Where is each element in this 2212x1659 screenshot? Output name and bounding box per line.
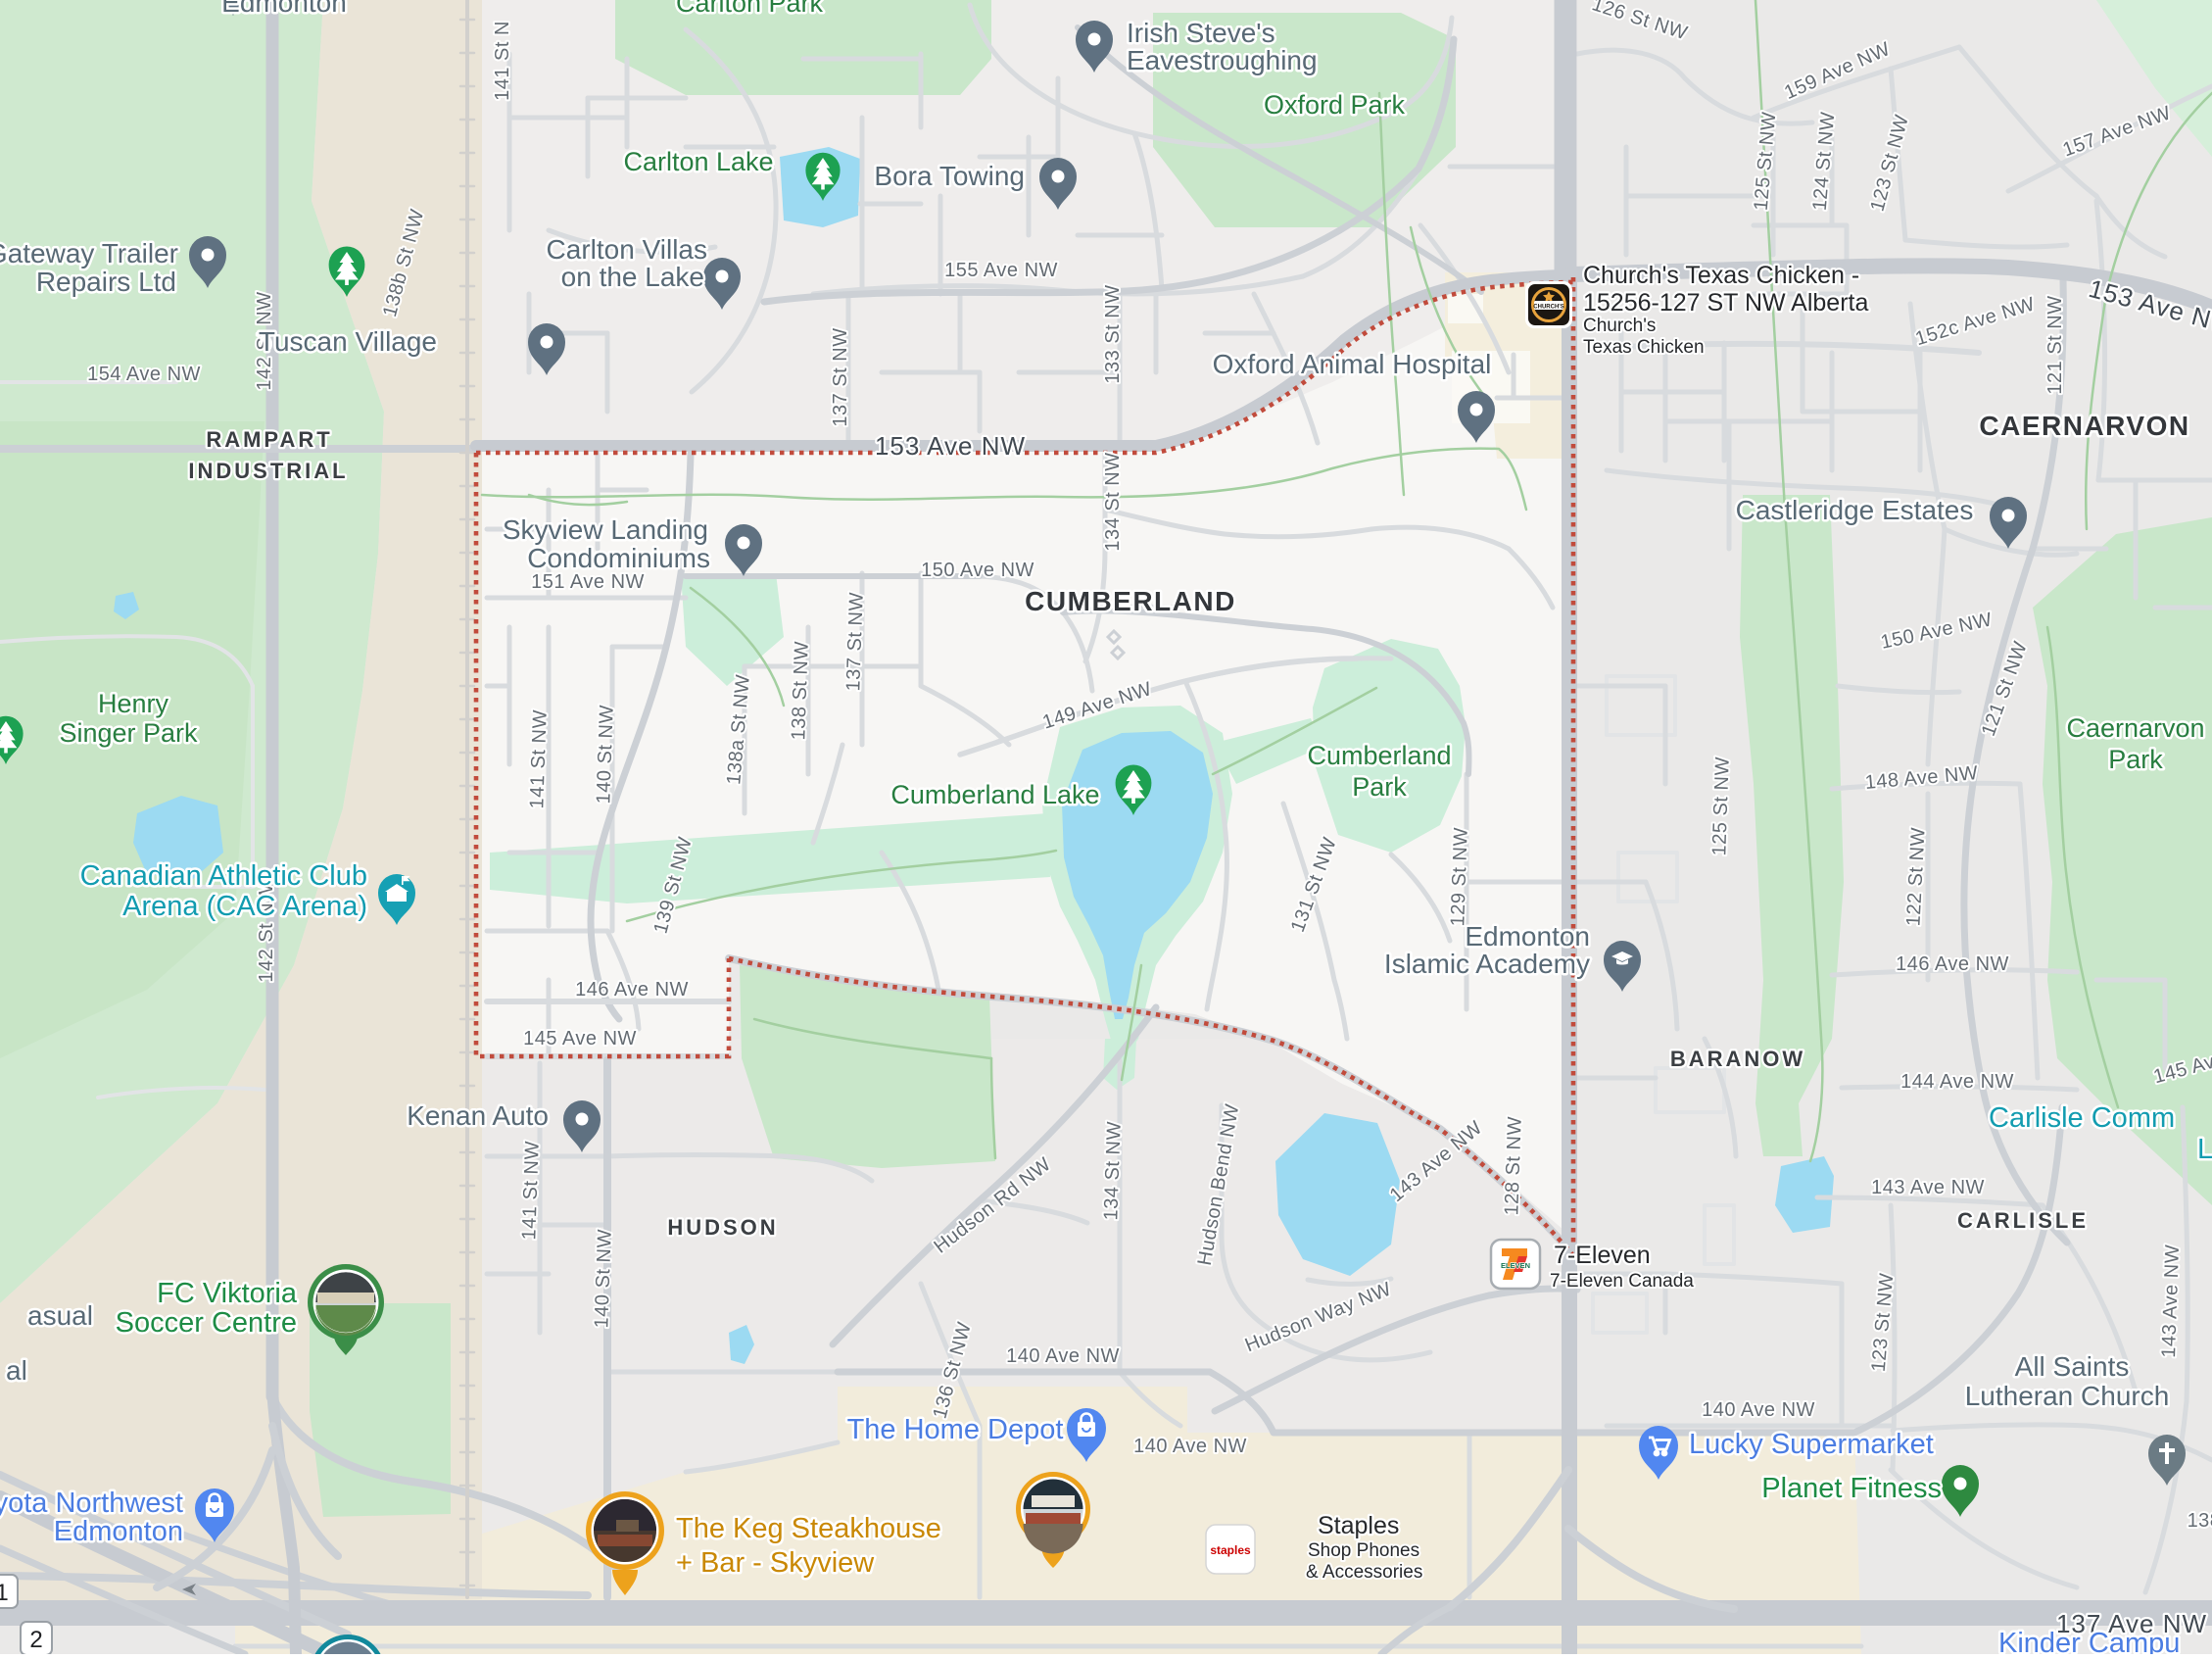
- svg-text:Park: Park: [1352, 772, 1407, 802]
- svg-text:Kinder Campu: Kinder Campu: [1998, 1628, 2180, 1654]
- svg-text:138 St NW: 138 St NW: [788, 641, 813, 741]
- svg-text:Irish Steve's: Irish Steve's: [1127, 18, 1275, 48]
- svg-text:Henry: Henry: [98, 689, 169, 718]
- svg-text:141 St NW: 141 St NW: [518, 1141, 544, 1241]
- svg-text:Edmonton: Edmonton: [54, 1516, 183, 1547]
- svg-text:Cumberland Lake: Cumberland Lake: [890, 780, 1099, 809]
- svg-text:1: 1: [0, 1580, 9, 1606]
- svg-text:+ Bar - Skyview: + Bar - Skyview: [676, 1547, 875, 1579]
- svg-text:146 Ave NW: 146 Ave NW: [1896, 953, 2009, 975]
- svg-text:150 Ave NW: 150 Ave NW: [921, 560, 1034, 581]
- svg-text:Lucky Supermarket: Lucky Supermarket: [1689, 1429, 1934, 1460]
- svg-text:HUDSON: HUDSON: [667, 1215, 778, 1240]
- svg-text:Planet Fitness: Planet Fitness: [1761, 1473, 1942, 1504]
- svg-text:140 Ave NW: 140 Ave NW: [1006, 1345, 1120, 1367]
- svg-text:Oxford Park: Oxford Park: [1264, 90, 1406, 120]
- svg-text:143 Ave NW: 143 Ave NW: [2158, 1244, 2184, 1359]
- svg-text:125 St NW: 125 St NW: [1708, 756, 1734, 856]
- svg-text:Shop Phones: Shop Phones: [1308, 1540, 1419, 1561]
- svg-text:CHURCH'S: CHURCH'S: [1533, 305, 1563, 311]
- svg-text:Gateway Trailer: Gateway Trailer: [0, 238, 178, 268]
- svg-text:ELEVEN: ELEVEN: [1501, 1261, 1530, 1270]
- svg-text:The Keg Steakhouse: The Keg Steakhouse: [676, 1513, 941, 1544]
- svg-text:140 St NW: 140 St NW: [591, 1229, 616, 1329]
- svg-text:Eavestroughing: Eavestroughing: [1127, 45, 1318, 75]
- svg-text:Carlisle Comm: Carlisle Comm: [1989, 1102, 2175, 1134]
- svg-text:Carlton Park: Carlton Park: [676, 0, 824, 18]
- svg-text:129 St NW: 129 St NW: [1447, 827, 1472, 927]
- svg-text:7-Eleven: 7-Eleven: [1554, 1242, 1651, 1269]
- svg-text:2: 2: [29, 1627, 42, 1653]
- svg-text:140 Ave NW: 140 Ave NW: [1133, 1436, 1247, 1457]
- svg-text:140 St NW: 140 St NW: [593, 705, 618, 805]
- svg-text:144 Ave NW: 144 Ave NW: [1900, 1071, 2014, 1093]
- svg-text:Castleridge Estates: Castleridge Estates: [1736, 495, 1974, 525]
- svg-text:on the Lake: on the Lake: [561, 262, 704, 292]
- svg-text:Church's Texas Chicken -: Church's Texas Chicken -: [1583, 262, 1859, 289]
- svg-text:Caernarvon: Caernarvon: [2066, 713, 2204, 743]
- svg-text:asual: asual: [27, 1300, 93, 1331]
- svg-text:Carlton Villas: Carlton Villas: [547, 234, 707, 265]
- svg-text:Church's: Church's: [1583, 316, 1656, 336]
- svg-text:153 Ave NW: 153 Ave NW: [875, 431, 1026, 461]
- svg-text:145 Ave NW: 145 Ave NW: [523, 1028, 637, 1049]
- svg-text:121 St NW: 121 St NW: [2044, 295, 2066, 394]
- svg-text:137 St NW: 137 St NW: [830, 327, 851, 426]
- svg-text:staples: staples: [1210, 1543, 1251, 1557]
- svg-text:& Accessories: & Accessories: [1306, 1562, 1422, 1583]
- svg-text:146 Ave NW: 146 Ave NW: [575, 979, 689, 1000]
- svg-text:Park: Park: [2108, 745, 2163, 774]
- svg-text:155 Ave NW: 155 Ave NW: [944, 260, 1058, 281]
- svg-text:Soccer Centre: Soccer Centre: [116, 1307, 297, 1339]
- svg-text:133 St NW: 133 St NW: [1102, 284, 1124, 383]
- svg-text:134 St NW: 134 St NW: [1102, 452, 1124, 551]
- svg-text:INDUSTRIAL: INDUSTRIAL: [188, 459, 348, 483]
- svg-text:128 St NW: 128 St NW: [1501, 1116, 1526, 1216]
- svg-text:Repairs Ltd: Repairs Ltd: [36, 267, 176, 297]
- svg-text:Kenan Auto: Kenan Auto: [407, 1100, 549, 1131]
- svg-text:Singer Park: Singer Park: [59, 718, 198, 748]
- svg-text:Cumberland: Cumberland: [1307, 741, 1451, 770]
- svg-text:Islamic Academy: Islamic Academy: [1384, 949, 1590, 979]
- svg-text:The Home Depot: The Home Depot: [847, 1414, 1064, 1445]
- svg-text:Oxford Animal Hospital: Oxford Animal Hospital: [1213, 349, 1492, 379]
- svg-text:All Saints: All Saints: [2015, 1351, 2130, 1382]
- svg-text:141 St N: 141 St N: [492, 21, 513, 101]
- svg-text:Edmonton: Edmonton: [221, 0, 347, 18]
- svg-text:143 Ave NW: 143 Ave NW: [1871, 1177, 1985, 1198]
- svg-text:yota Northwest: yota Northwest: [0, 1488, 183, 1519]
- svg-text:140 Ave NW: 140 Ave NW: [1702, 1399, 1815, 1421]
- svg-text:141 St NW: 141 St NW: [526, 709, 552, 809]
- svg-text:Tuscan Village: Tuscan Village: [259, 326, 437, 357]
- svg-text:BARANOW: BARANOW: [1670, 1047, 1805, 1071]
- svg-text:CUMBERLAND: CUMBERLAND: [1025, 586, 1236, 616]
- svg-text:151 Ave NW: 151 Ave NW: [531, 571, 645, 593]
- svg-text:Bora Towing: Bora Towing: [874, 161, 1025, 191]
- svg-text:138: 138: [2188, 1510, 2212, 1532]
- svg-text:Arena (CAC Arena): Arena (CAC Arena): [122, 891, 367, 922]
- svg-text:CARLISLE: CARLISLE: [1957, 1208, 2089, 1233]
- svg-text:Canadian Athletic Club: Canadian Athletic Club: [80, 860, 367, 892]
- svg-text:Texas Chicken: Texas Chicken: [1583, 337, 1705, 358]
- svg-text:15256-127 ST NW Alberta: 15256-127 ST NW Alberta: [1583, 289, 1868, 317]
- svg-text:154 Ave NW: 154 Ave NW: [87, 364, 201, 385]
- svg-text:137 St NW: 137 St NW: [842, 592, 868, 692]
- svg-text:Edmonton: Edmonton: [1465, 921, 1590, 951]
- svg-text:Lutheran Church: Lutheran Church: [1965, 1381, 2170, 1411]
- svg-text:al: al: [6, 1355, 27, 1386]
- svg-text:Condominiums: Condominiums: [527, 543, 710, 573]
- svg-text:L: L: [2197, 1134, 2212, 1165]
- svg-text:FC Viktoria: FC Viktoria: [157, 1278, 298, 1309]
- svg-text:Skyview Landing: Skyview Landing: [503, 514, 708, 545]
- svg-text:CAERNARVON: CAERNARVON: [1979, 411, 2189, 441]
- svg-text:134 St NW: 134 St NW: [1100, 1121, 1126, 1221]
- svg-text:RAMPART: RAMPART: [206, 427, 332, 452]
- svg-text:Staples: Staples: [1318, 1512, 1399, 1539]
- svg-text:Carlton Lake: Carlton Lake: [623, 147, 773, 176]
- svg-text:7-Eleven Canada: 7-Eleven Canada: [1550, 1271, 1694, 1292]
